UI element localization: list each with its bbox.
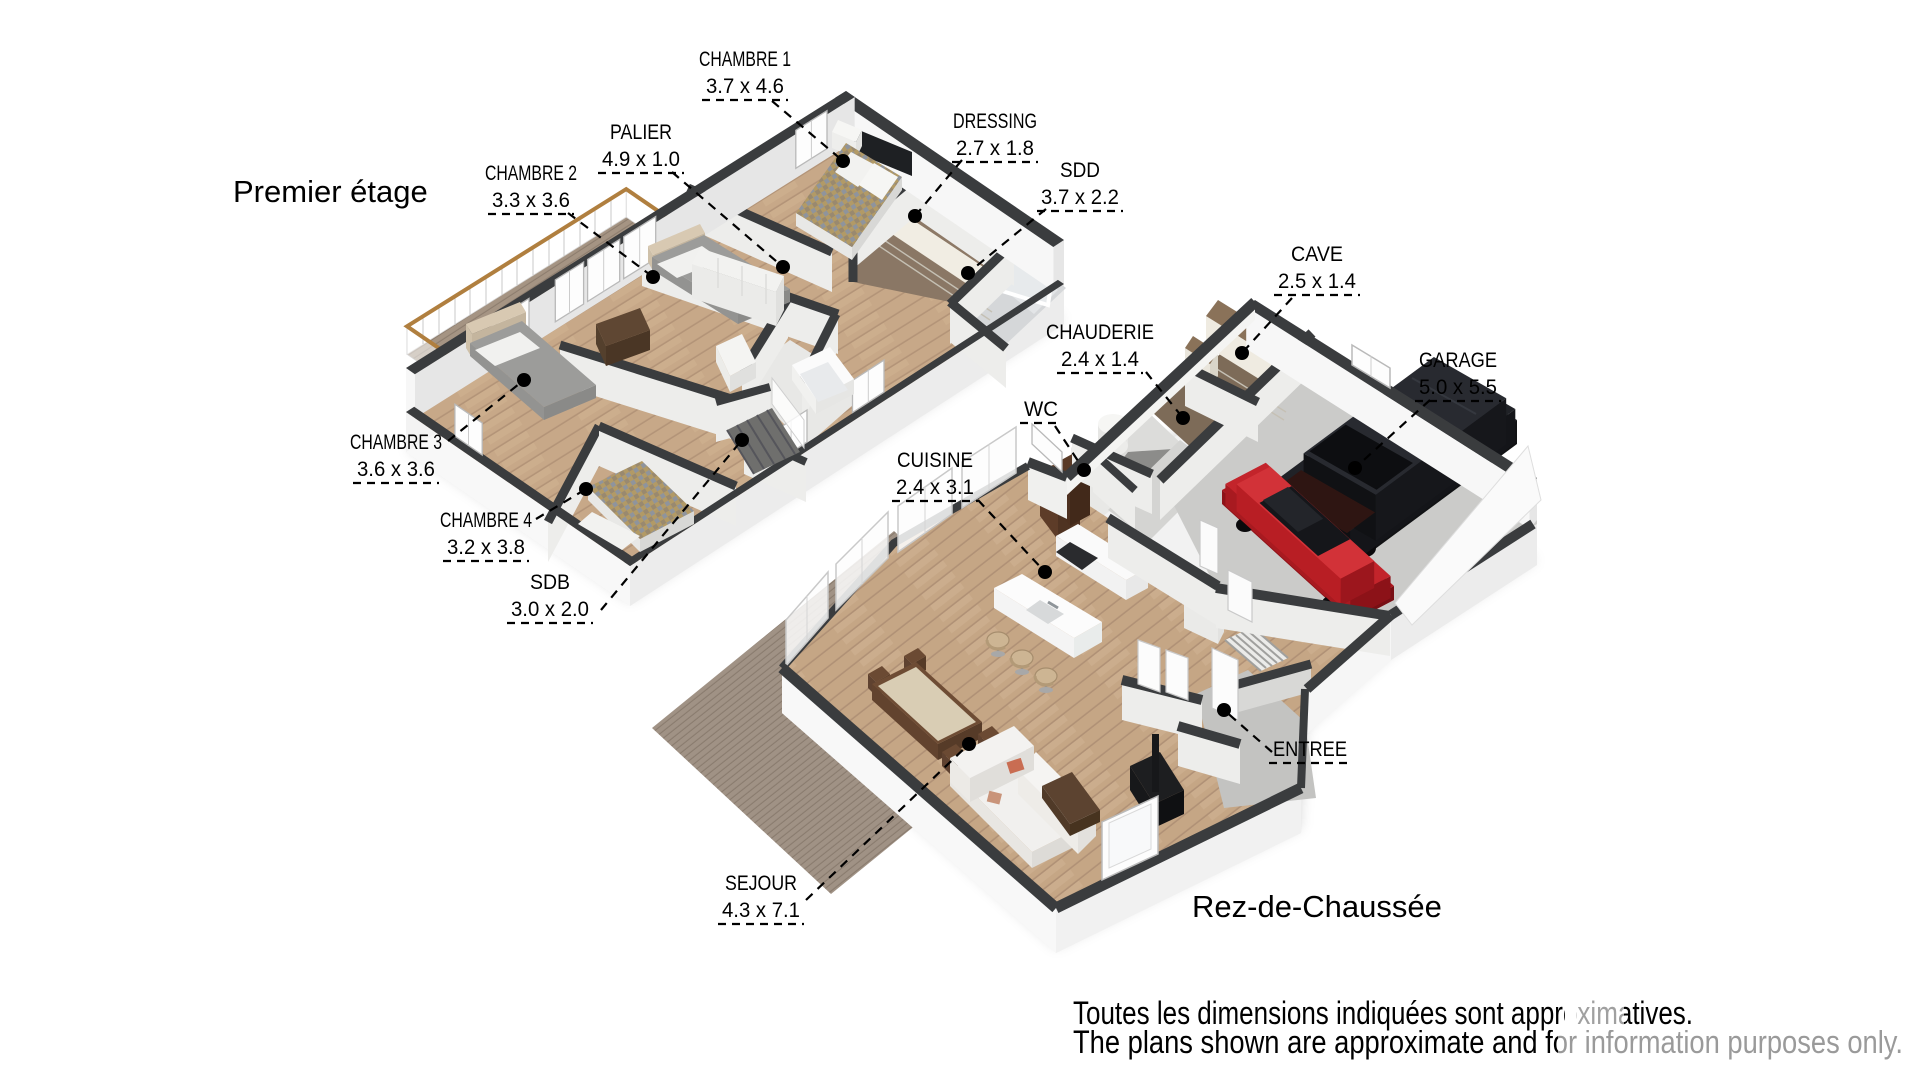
svg-text:SDD: SDD bbox=[1060, 158, 1100, 182]
svg-text:DRESSING: DRESSING bbox=[953, 109, 1037, 133]
svg-text:Rez-de-Chaussée: Rez-de-Chaussée bbox=[1192, 889, 1442, 924]
svg-text:CAVE: CAVE bbox=[1291, 242, 1343, 266]
svg-text:4.3 x 7.1: 4.3 x 7.1 bbox=[722, 898, 800, 922]
svg-text:SEJOUR: SEJOUR bbox=[725, 871, 797, 895]
svg-text:Premier étage: Premier étage bbox=[233, 174, 428, 209]
svg-text:2.4 x 3.1: 2.4 x 3.1 bbox=[896, 475, 974, 499]
svg-text:4.9 x 1.0: 4.9 x 1.0 bbox=[602, 147, 680, 171]
svg-text:3.0 x 2.0: 3.0 x 2.0 bbox=[511, 597, 589, 621]
svg-text:GARAGE: GARAGE bbox=[1419, 348, 1497, 372]
svg-text:PALIER: PALIER bbox=[610, 120, 672, 144]
svg-text:CUISINE: CUISINE bbox=[897, 448, 973, 472]
svg-text:CHAUDERIE: CHAUDERIE bbox=[1046, 320, 1154, 344]
svg-text:3.6 x 3.6: 3.6 x 3.6 bbox=[357, 457, 435, 481]
svg-text:WC: WC bbox=[1024, 397, 1058, 421]
svg-text:2.4 x 1.4: 2.4 x 1.4 bbox=[1061, 347, 1139, 371]
svg-text:CHAMBRE 3: CHAMBRE 3 bbox=[350, 430, 442, 454]
svg-text:CHAMBRE 1: CHAMBRE 1 bbox=[699, 47, 791, 71]
svg-text:5.0 x 5.5: 5.0 x 5.5 bbox=[1419, 375, 1497, 399]
svg-text:3.7 x 4.6: 3.7 x 4.6 bbox=[706, 74, 784, 98]
svg-text:SDB: SDB bbox=[530, 570, 570, 594]
svg-text:2.7 x 1.8: 2.7 x 1.8 bbox=[956, 136, 1034, 160]
svg-text:CHAMBRE 4: CHAMBRE 4 bbox=[440, 508, 532, 532]
svg-text:3.7 x 2.2: 3.7 x 2.2 bbox=[1041, 185, 1119, 209]
svg-text:3.2 x 3.8: 3.2 x 3.8 bbox=[447, 535, 525, 559]
svg-text:CHAMBRE 2: CHAMBRE 2 bbox=[485, 161, 577, 185]
svg-text:3.3 x 3.6: 3.3 x 3.6 bbox=[492, 188, 570, 212]
svg-text:2.5 x 1.4: 2.5 x 1.4 bbox=[1278, 269, 1356, 293]
svg-text:ENTREE: ENTREE bbox=[1273, 737, 1347, 761]
